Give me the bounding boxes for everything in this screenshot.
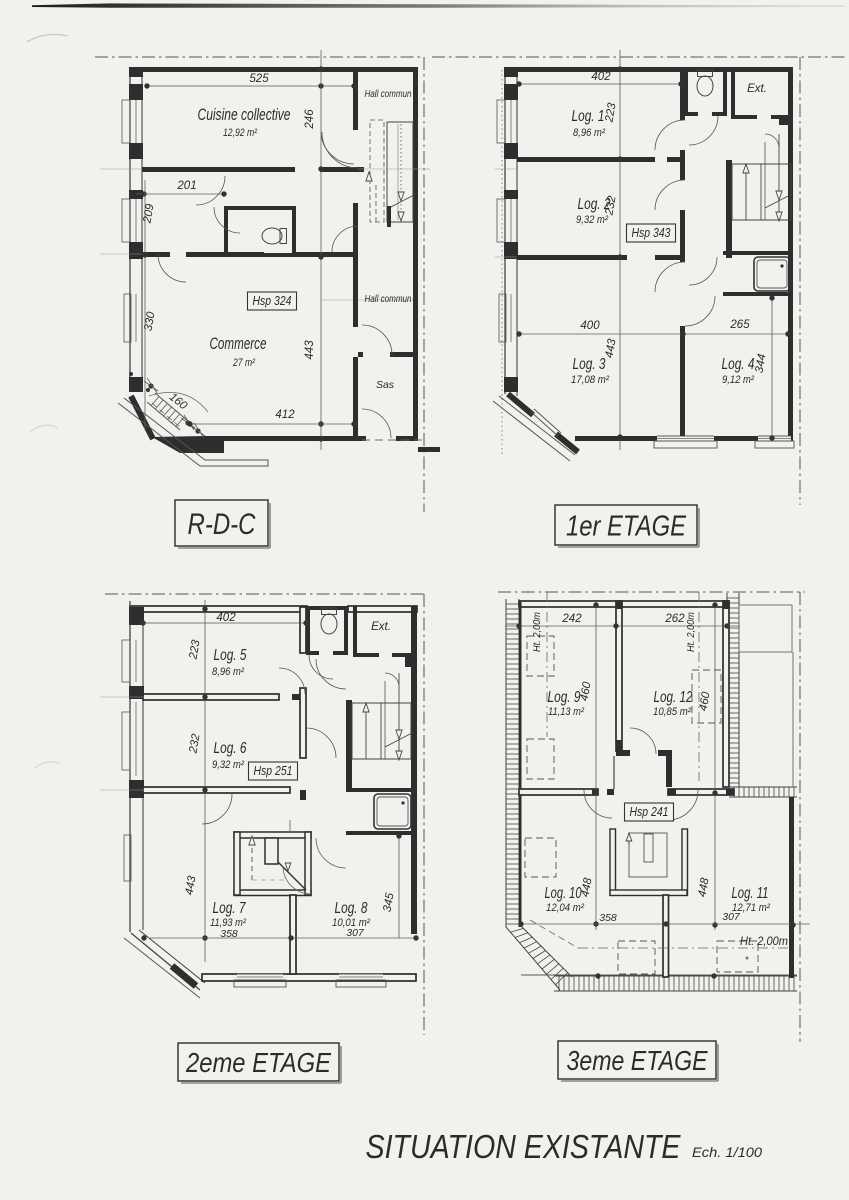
svg-text:10,01 m²: 10,01 m² xyxy=(332,917,370,929)
svg-text:11,93 m²: 11,93 m² xyxy=(210,917,246,929)
svg-text:Hall commun: Hall commun xyxy=(365,89,412,100)
svg-text:Hsp 324: Hsp 324 xyxy=(253,294,292,308)
svg-text:Log. 11: Log. 11 xyxy=(732,885,769,902)
svg-text:Log. 9: Log. 9 xyxy=(548,689,581,706)
svg-text:3eme ETAGE: 3eme ETAGE xyxy=(567,1045,708,1076)
svg-text:12,71 m²: 12,71 m² xyxy=(732,902,770,914)
svg-text:Log. 5: Log. 5 xyxy=(214,647,247,664)
svg-text:10,85 m²: 10,85 m² xyxy=(653,706,691,718)
svg-text:412: 412 xyxy=(275,409,295,421)
svg-text:Log. 7: Log. 7 xyxy=(213,900,247,917)
svg-text:Ext.: Ext. xyxy=(747,83,767,95)
svg-text:11,13 m²: 11,13 m² xyxy=(548,706,584,718)
svg-text:12,04 m²: 12,04 m² xyxy=(546,902,584,914)
svg-text:Log. 8: Log. 8 xyxy=(335,900,368,917)
svg-text:17,08 m²: 17,08 m² xyxy=(571,374,609,386)
svg-text:12,92 m²: 12,92 m² xyxy=(223,127,257,139)
svg-text:Ht. 2,00m: Ht. 2,00m xyxy=(740,934,788,948)
svg-text:9,32 m²: 9,32 m² xyxy=(576,214,608,226)
svg-text:Hsp 343: Hsp 343 xyxy=(632,226,671,240)
svg-text:Log. 6: Log. 6 xyxy=(214,740,247,757)
svg-text:SITUATION EXISTANTE: SITUATION EXISTANTE xyxy=(366,1128,682,1165)
svg-text:443: 443 xyxy=(304,340,316,360)
svg-text:265: 265 xyxy=(729,319,750,331)
svg-text:9,32 m²: 9,32 m² xyxy=(212,759,244,771)
svg-text:Log. 10: Log. 10 xyxy=(545,885,582,902)
svg-text:8,96 m²: 8,96 m² xyxy=(212,666,244,678)
svg-text:525: 525 xyxy=(249,73,269,85)
svg-text:Hsp 241: Hsp 241 xyxy=(630,805,669,819)
svg-text:27 m²: 27 m² xyxy=(232,357,255,369)
svg-text:246: 246 xyxy=(304,109,316,130)
svg-text:9,12 m²: 9,12 m² xyxy=(722,374,754,386)
svg-text:Sas: Sas xyxy=(376,379,395,391)
svg-text:201: 201 xyxy=(176,180,196,192)
svg-text:Log. 1: Log. 1 xyxy=(572,108,605,125)
svg-text:Ht. 2,00m: Ht. 2,00m xyxy=(531,612,543,652)
svg-text:400: 400 xyxy=(580,320,600,332)
svg-text:Log. 3: Log. 3 xyxy=(573,356,606,373)
svg-text:Hsp 251: Hsp 251 xyxy=(254,764,293,778)
svg-text:Ht. 2,00m: Ht. 2,00m xyxy=(685,612,697,652)
svg-text:Commerce: Commerce xyxy=(210,335,267,353)
svg-text:402: 402 xyxy=(591,71,611,83)
svg-text:358: 358 xyxy=(220,928,238,940)
svg-text:242: 242 xyxy=(561,613,582,625)
svg-text:2eme ETAGE: 2eme ETAGE xyxy=(185,1047,331,1078)
svg-text:Ech. 1/100: Ech. 1/100 xyxy=(692,1145,763,1160)
svg-text:358: 358 xyxy=(599,912,617,924)
svg-text:8,96 m²: 8,96 m² xyxy=(573,127,605,139)
svg-text:R-D-C: R-D-C xyxy=(188,508,256,541)
svg-text:402: 402 xyxy=(216,612,236,624)
svg-text:Log. 12: Log. 12 xyxy=(654,689,693,706)
svg-text:262: 262 xyxy=(664,613,685,625)
svg-text:Hall commun: Hall commun xyxy=(365,294,412,305)
svg-text:Ext.: Ext. xyxy=(371,621,391,633)
svg-text:Log. 4: Log. 4 xyxy=(722,356,755,373)
svg-text:Log. 2: Log. 2 xyxy=(578,196,611,213)
svg-text:Cuisine collective: Cuisine collective xyxy=(198,106,291,124)
svg-text:1er ETAGE: 1er ETAGE xyxy=(566,510,687,542)
